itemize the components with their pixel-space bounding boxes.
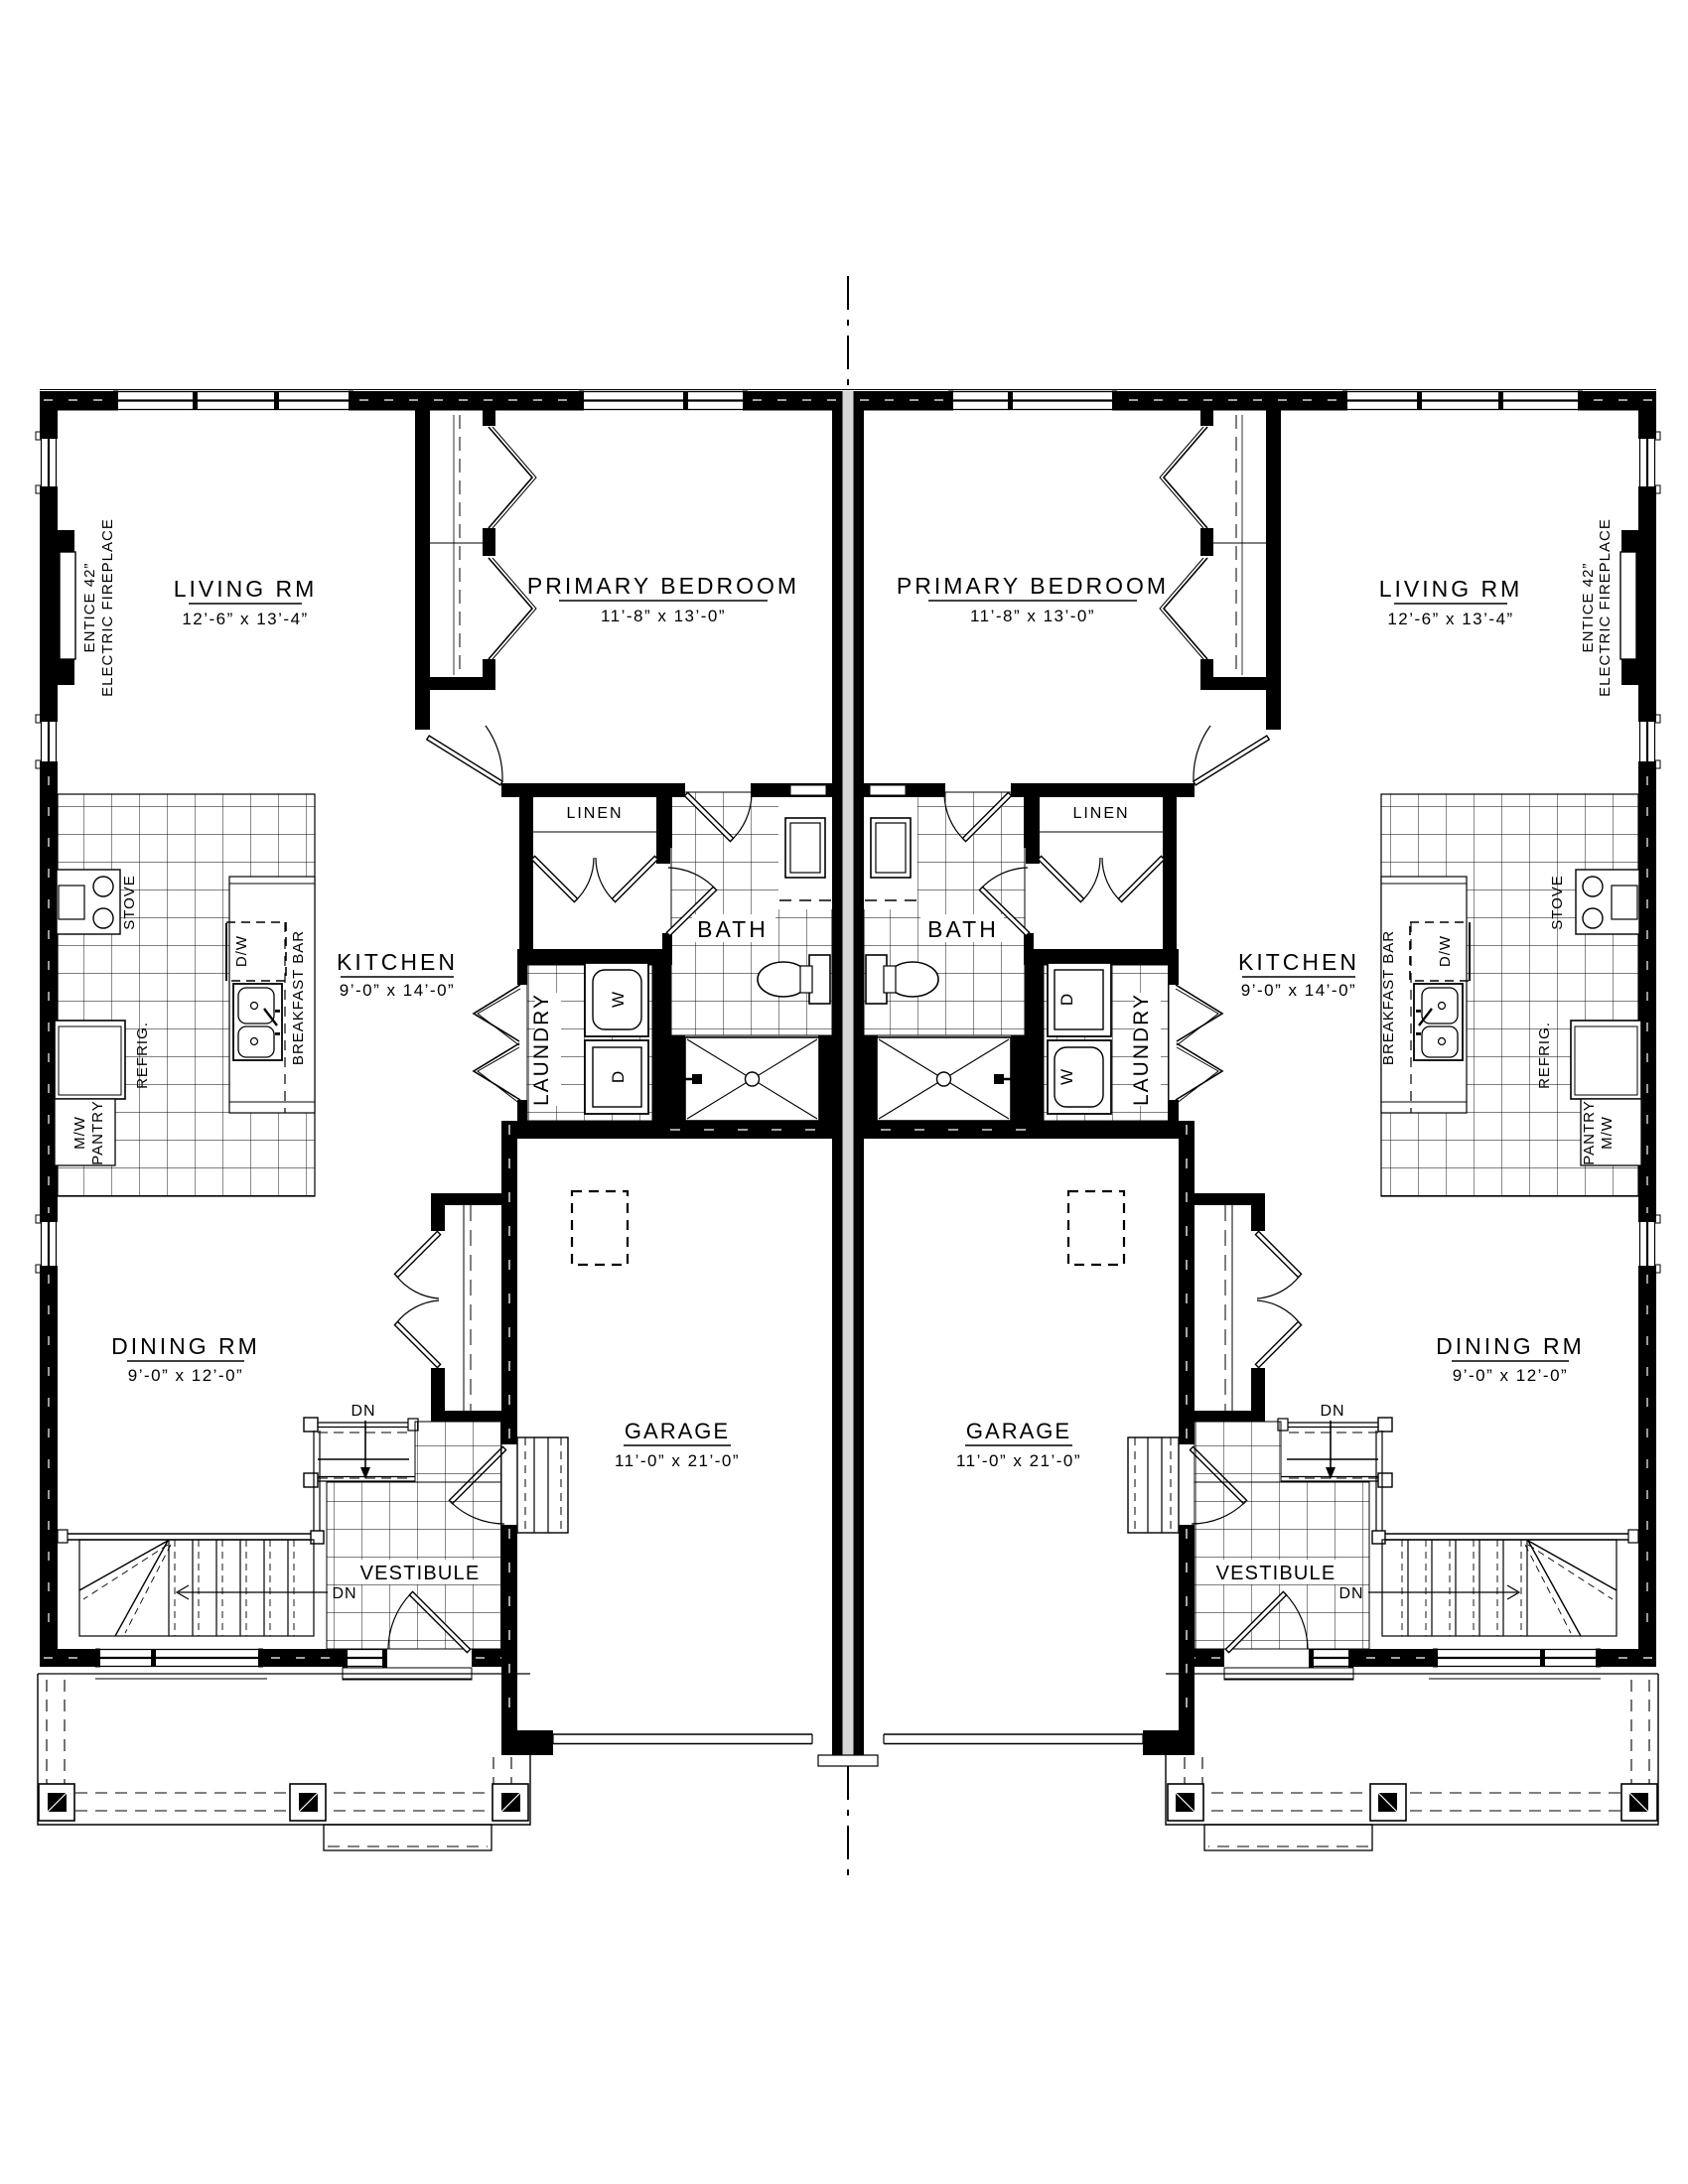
- svg-text:12’-6” x 13’-4”: 12’-6” x 13’-4”: [182, 610, 308, 628]
- svg-text:REFRIG.: REFRIG.: [1536, 1022, 1553, 1089]
- svg-text:BREAKFAST BAR: BREAKFAST BAR: [290, 930, 307, 1065]
- svg-text:LAUNDRY: LAUNDRY: [530, 993, 553, 1106]
- svg-text:STOVE: STOVE: [121, 875, 138, 930]
- svg-text:LIVING RM: LIVING RM: [174, 576, 318, 602]
- svg-text:BATH: BATH: [927, 916, 999, 942]
- svg-text:BATH: BATH: [697, 916, 769, 942]
- svg-text:11’-8” x 13’-0”: 11’-8” x 13’-0”: [601, 607, 726, 625]
- svg-text:LAUNDRY: LAUNDRY: [1130, 993, 1153, 1106]
- svg-text:GARAGE: GARAGE: [625, 1419, 730, 1443]
- svg-text:W: W: [1057, 1069, 1076, 1085]
- svg-text:M/W: M/W: [71, 1116, 88, 1150]
- svg-text:DINING RM: DINING RM: [111, 1333, 260, 1359]
- svg-text:12’-6” x 13’-4”: 12’-6” x 13’-4”: [1387, 610, 1513, 628]
- svg-text:KITCHEN: KITCHEN: [337, 949, 458, 975]
- svg-text:W: W: [609, 992, 628, 1008]
- svg-text:PRIMARY BEDROOM: PRIMARY BEDROOM: [527, 573, 799, 599]
- svg-text:D: D: [1057, 994, 1076, 1006]
- svg-text:9’-0” x 14’-0”: 9’-0” x 14’-0”: [340, 981, 455, 1000]
- svg-text:DN: DN: [351, 1403, 375, 1420]
- svg-text:PRIMARY BEDROOM: PRIMARY BEDROOM: [897, 573, 1169, 599]
- svg-text:ENTICE 42”: ENTICE 42”: [81, 563, 98, 653]
- svg-text:PANTRY: PANTRY: [1581, 1100, 1598, 1164]
- svg-text:STOVE: STOVE: [1549, 875, 1566, 930]
- svg-text:DN: DN: [1320, 1403, 1344, 1420]
- svg-text:11’-0” x 21’-0”: 11’-0” x 21’-0”: [956, 1451, 1081, 1470]
- svg-text:M/W: M/W: [1599, 1116, 1616, 1150]
- svg-text:GARAGE: GARAGE: [966, 1419, 1071, 1443]
- svg-text:11’-8” x 13’-0”: 11’-8” x 13’-0”: [970, 607, 1095, 625]
- svg-text:11’-0” x 21’-0”: 11’-0” x 21’-0”: [615, 1451, 740, 1470]
- svg-text:LINEN: LINEN: [566, 805, 623, 822]
- svg-text:D: D: [609, 1071, 628, 1083]
- svg-text:PANTRY: PANTRY: [89, 1100, 106, 1164]
- svg-text:9’-0” x 12’-0”: 9’-0” x 12’-0”: [128, 1366, 243, 1385]
- svg-text:VESTIBULE: VESTIBULE: [360, 1563, 481, 1584]
- svg-text:ENTICE 42”: ENTICE 42”: [1580, 563, 1597, 653]
- svg-text:LINEN: LINEN: [1072, 805, 1129, 822]
- svg-text:D/W: D/W: [1437, 935, 1454, 967]
- svg-text:ELECTRIC FIREPLACE: ELECTRIC FIREPLACE: [99, 518, 116, 697]
- svg-text:REFRIG.: REFRIG.: [134, 1022, 151, 1089]
- svg-text:DINING RM: DINING RM: [1436, 1333, 1585, 1359]
- svg-text:9’-0” x 12’-0”: 9’-0” x 12’-0”: [1453, 1366, 1568, 1385]
- svg-text:ELECTRIC FIREPLACE: ELECTRIC FIREPLACE: [1597, 518, 1614, 697]
- svg-text:LIVING RM: LIVING RM: [1379, 576, 1523, 602]
- svg-text:BREAKFAST BAR: BREAKFAST BAR: [1380, 930, 1397, 1065]
- svg-text:KITCHEN: KITCHEN: [1238, 949, 1359, 975]
- svg-text:9’-0” x 14’-0”: 9’-0” x 14’-0”: [1241, 981, 1356, 1000]
- svg-text:VESTIBULE: VESTIBULE: [1216, 1563, 1336, 1584]
- svg-text:D/W: D/W: [233, 935, 250, 967]
